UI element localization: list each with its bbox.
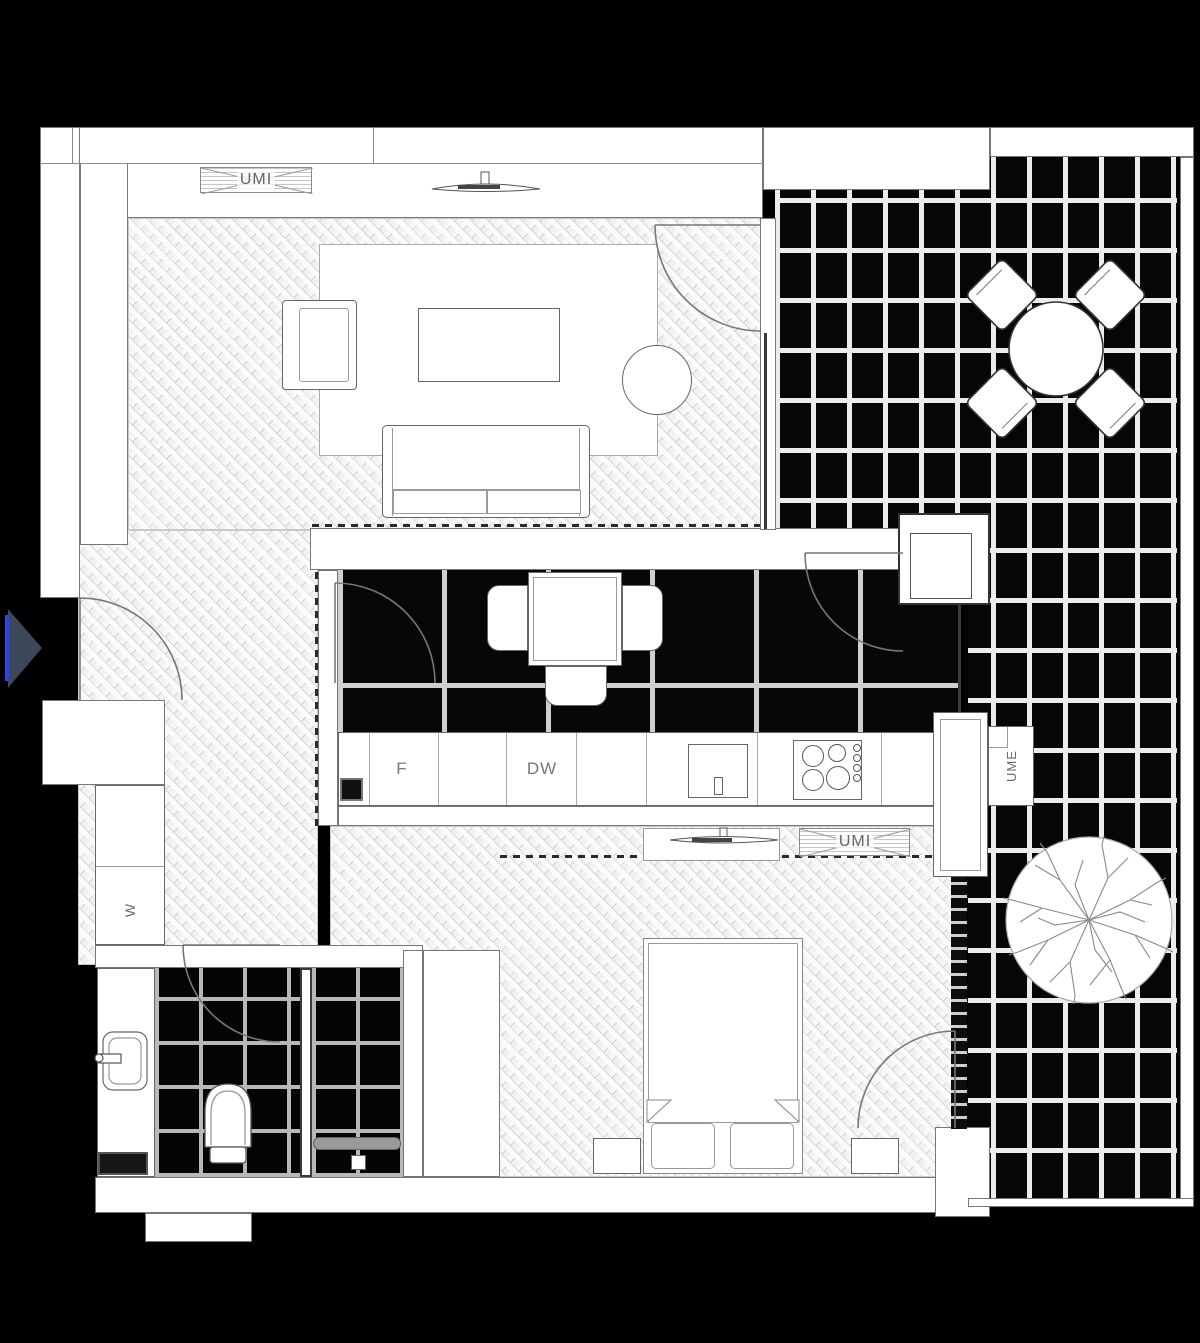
shower-drain [351,1155,366,1170]
kitchen-corner-unit [898,513,990,605]
north-wall-joint-mid [373,127,374,163]
entry-arrow-icon [5,609,42,688]
north-wall-balcony-right [990,127,1194,157]
tall-cabinet [933,712,988,877]
vent-kitchen-label: UMI [817,828,893,856]
bedroom-wardrobe [423,950,500,1177]
counter-divider [646,733,647,805]
hall-kitchen-wall [318,570,338,826]
wall-hatch-bedroom-top [500,855,643,858]
bathroom-north-wall [95,945,423,968]
south-wall-tab [145,1213,252,1242]
corner-unit-inner [910,533,972,599]
nightstand-left [593,1138,641,1174]
cooktop [793,740,862,800]
bed-duvet [648,943,798,1123]
ume-label: UME [991,736,1031,796]
knob [853,744,861,752]
west-wall-inner-strip [80,163,128,545]
wall-hatch-living-bottom [312,524,762,527]
burner [828,744,846,762]
sofa-cushion [487,490,581,514]
sink-faucet [714,777,723,795]
knob [853,764,861,772]
counter-divider [506,733,507,805]
dining-chair-bottom [545,666,607,706]
north-wall-sill-line [40,163,763,164]
kitchen-sink [688,744,748,798]
dining-chair-left [487,585,528,651]
counter-divider [438,733,439,805]
dining-table [528,572,622,666]
burner [802,745,824,767]
east-outer-wall [1180,157,1194,1207]
washer-label: W [110,880,150,940]
nightstand-right [851,1138,899,1174]
bathroom-floor-tiles [155,968,303,1177]
sofa-cushion [393,490,487,514]
living-balcony-glazing [764,333,767,529]
shower-bench [313,1137,401,1150]
bedroom-balcony-wall [951,877,967,1129]
living-balcony-mullion [760,218,776,530]
vent-living-label: UMI [218,167,294,193]
bath-shower-divider [300,968,312,1177]
armchair [282,300,357,390]
north-wall-balcony-step [763,127,990,190]
burner [802,769,824,791]
armchair-cushion [299,308,349,382]
sofa [382,425,590,518]
shower-corridor-wall [403,950,423,1177]
kitchen-balcony-glazing [958,600,961,713]
cabinet-inner [940,719,981,871]
bathroom-vanity [97,968,155,1177]
counter-divider [881,733,882,805]
counter-end-block [340,778,363,801]
dishwasher-label: DW [512,756,572,782]
counter-divider [369,733,370,805]
balcony-south-edge [968,1198,1194,1207]
north-wall [40,127,763,218]
living-kitchen-wall [310,528,963,570]
burner [826,766,850,790]
coffee-table [418,308,560,382]
pillow [730,1123,794,1169]
knob [853,774,861,782]
side-table [622,345,692,415]
bed [643,938,803,1174]
west-wall-entry-lower [42,700,165,785]
entry-arrow-accent [5,615,9,681]
dining-chair-right [622,585,663,651]
south-wall [95,1177,963,1213]
fridge-label: F [380,756,424,782]
west-wall-upper [40,127,80,598]
floor-plan-canvas: W F DW UME [0,0,1200,1343]
counter-divider [576,733,577,805]
dining-table-top [533,577,617,661]
knob [853,754,861,762]
bathroom-radiator [98,1152,148,1175]
north-wall-joint-left [72,127,73,163]
pillow [651,1123,715,1169]
closet-divider [96,866,164,867]
kitchen-bedroom-wall [338,806,963,826]
bedroom-tv-niche [643,828,780,861]
counter-divider [757,733,758,805]
